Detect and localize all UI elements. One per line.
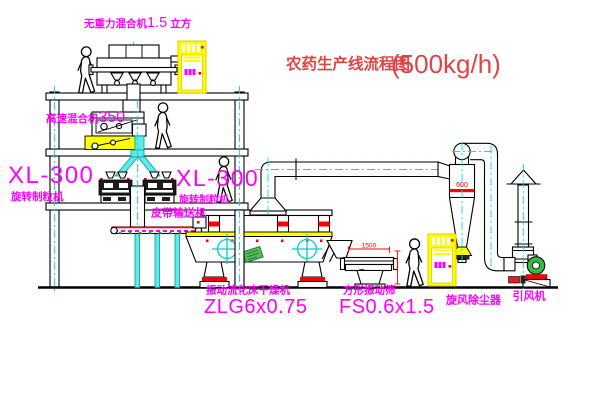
granulator-right-machine xyxy=(143,172,176,203)
label-belt-conveyor: 皮带输送机 xyxy=(150,206,206,220)
granulator-left-machine xyxy=(99,172,132,203)
cad-flow-diagram: 农药生产线流程图 (500kg/h) 无重力混合机1.5立方 高速混合机350 … xyxy=(0,0,600,403)
svg-text:方形振动筛: 方形振动筛 xyxy=(343,284,396,297)
person-figure xyxy=(155,103,171,148)
svg-text:XL-300: XL-300 xyxy=(8,162,94,189)
cyclone-separator xyxy=(450,142,505,271)
svg-text:ZLG6x0.75: ZLG6x0.75 xyxy=(204,296,307,318)
label-fan: 引风机 xyxy=(513,289,546,303)
spring-mounts xyxy=(209,216,330,233)
svg-text:振动流化床干燥机: 振动流化床干燥机 xyxy=(206,284,290,297)
svg-text:XL-300: XL-300 xyxy=(176,165,259,191)
diagram-canvas: 农药生产线流程图 (500kg/h) 无重力混合机1.5立方 高速混合机350 … xyxy=(0,0,600,403)
dim-cyclone-diameter: 600 xyxy=(456,182,468,189)
bucket-elevator-cabinet-ground xyxy=(428,234,456,286)
title-capacity: (500kg/h) xyxy=(391,49,501,79)
label-granulator-left: XL-300 旋转制粒机 xyxy=(8,162,94,203)
exhaust-duct xyxy=(255,158,450,214)
bucket-elevator-cabinet-top xyxy=(178,41,206,93)
svg-text:FS0.6x1.5: FS0.6x1.5 xyxy=(339,296,435,318)
svg-text:旋转制粒机: 旋转制粒机 xyxy=(10,190,64,203)
label-cyclone: 旋风除尘器 xyxy=(445,293,502,307)
svg-text:旋转制粒机: 旋转制粒机 xyxy=(178,193,229,206)
drawing-title: 农药生产线流程图 (500kg/h) xyxy=(285,49,501,79)
person-figure xyxy=(406,239,423,286)
fluid-bed-dryer-machine xyxy=(186,198,332,288)
dim-screen-length: 1500 xyxy=(362,243,377,250)
label-weightless-mixer: 无重力混合机1.5立方 xyxy=(83,15,192,31)
building-column-overlay xyxy=(235,210,244,287)
label-granulator-right: XL-300 旋转制粒机 xyxy=(176,165,259,206)
